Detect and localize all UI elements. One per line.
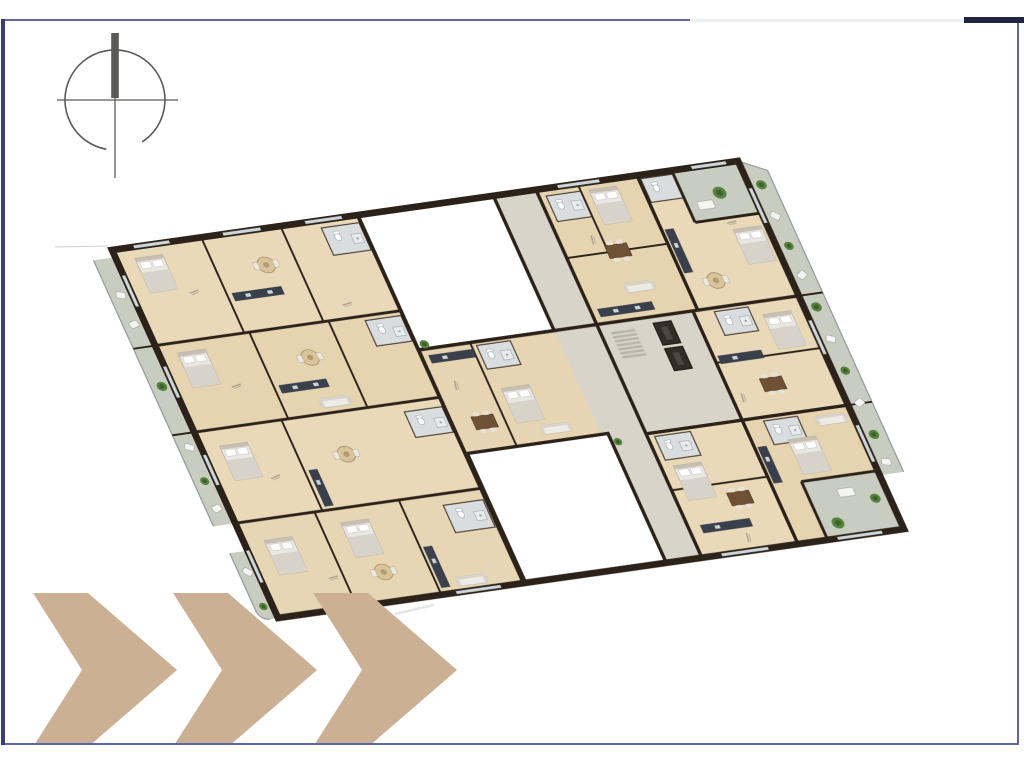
chevron-decoration: [33, 593, 457, 743]
frame-top-right-accent-bar: [964, 17, 1024, 23]
faint-mark: [55, 246, 108, 247]
frame-top-light-segment: [690, 19, 965, 22]
north-compass-icon: [57, 33, 178, 178]
frame-left-dark-edge: [1, 19, 5, 745]
floor-plan-canvas: [4, 21, 1017, 743]
faint-mark: [395, 605, 434, 614]
content-frame: [2, 19, 1019, 745]
balcony-chair: [881, 458, 892, 465]
page: { "colors": { "page-bg": "#ffffff", "fra…: [0, 0, 1024, 768]
chevron-arrow: [313, 593, 457, 743]
floor-plan-rendering: [90, 158, 928, 621]
chevron-arrow: [33, 593, 177, 743]
